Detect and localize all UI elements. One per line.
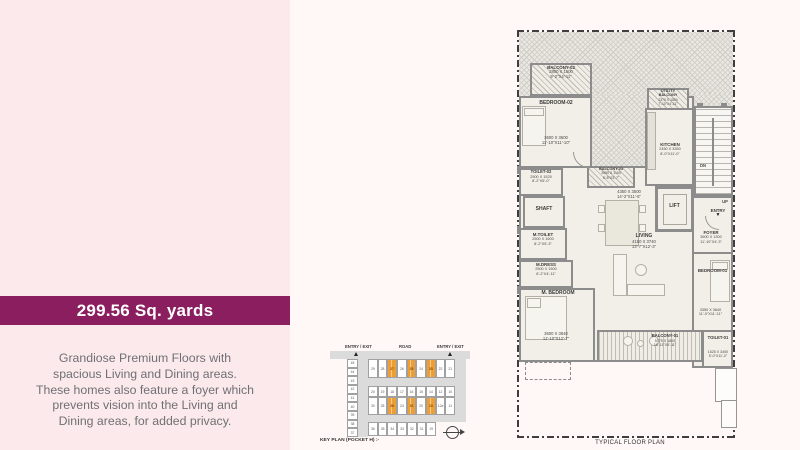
description-line: Dining areas, for added privacy. xyxy=(14,414,276,430)
key-plan-cell: 14 xyxy=(426,386,436,397)
key-plan-cell: 24 xyxy=(397,397,407,415)
key-plan-cell: 10 xyxy=(445,386,455,397)
wall-tick xyxy=(517,226,521,234)
key-plan-cell: 24 xyxy=(416,359,426,378)
stair-rail xyxy=(712,118,714,186)
m-bedroom-projection xyxy=(525,362,571,380)
key-plan-cell: 12a xyxy=(436,397,446,415)
key-plan-cell: 19 xyxy=(426,422,436,436)
key-plan-cell: 34 xyxy=(387,422,397,436)
kitchen-counter-icon xyxy=(647,112,656,170)
chair-icon xyxy=(639,224,646,232)
key-plan-caption: KEY PLAN (POCKET H) :- xyxy=(320,438,379,443)
wall-tick xyxy=(517,286,521,294)
entry-exit-left-label: ENTRY / EXIT xyxy=(345,344,372,349)
key-plan-cell: 40 xyxy=(347,402,358,411)
key-plan-row-1: 292827262524232221 xyxy=(368,359,455,378)
room-balcony-01 xyxy=(597,330,703,362)
key-plan: ENTRY / EXIT ROAD ENTRY / EXIT 454443424… xyxy=(318,342,476,450)
key-plan-cell: 15 xyxy=(416,386,426,397)
floor-plan-caption: TYPICAL FLOOR PLAN xyxy=(560,440,700,446)
room-utility-balcony xyxy=(647,88,689,110)
key-plan-cell: 26 xyxy=(397,359,407,378)
key-plan-cell: 22 xyxy=(436,359,446,378)
road-right-vertical xyxy=(455,359,466,422)
wall-tick xyxy=(721,103,727,108)
key-plan-cell: 20 xyxy=(416,397,426,415)
road-middle-1 xyxy=(368,378,466,386)
key-plan-cell: 30 xyxy=(368,397,378,415)
key-plan-cell: 39 xyxy=(347,411,358,420)
description-line: These homes also feature a foyer which xyxy=(14,383,276,399)
key-plan-cell: 26 xyxy=(387,397,397,415)
road-label: ROAD xyxy=(399,344,411,349)
key-plan-cell: 28 xyxy=(378,397,388,415)
entry-exit-right-label: ENTRY / EXIT xyxy=(437,344,464,349)
description-line: Grandiose Premium Floors with xyxy=(14,351,276,367)
entry-marker-icon xyxy=(448,352,452,356)
key-plan-cell: 44 xyxy=(347,368,358,377)
key-plan-cell: 32 xyxy=(407,422,417,436)
key-plan-row-4: 36353433323119 xyxy=(368,422,436,436)
key-plan-cell: 25 xyxy=(407,359,417,378)
key-plan-cell: 29 xyxy=(368,359,378,378)
compass-tip xyxy=(460,429,465,435)
key-plan-cell: 11 xyxy=(445,397,455,415)
key-plan-row-2: 201918171615141210 xyxy=(368,386,455,397)
key-plan-cell: 27 xyxy=(387,359,397,378)
pillow-icon xyxy=(527,298,541,308)
sofa-icon xyxy=(627,284,665,296)
area-banner: 299.56 Sq. yards xyxy=(0,296,290,325)
room-shaft xyxy=(523,196,565,228)
plan-border-bottom xyxy=(517,436,735,438)
description-line: prevents vision into the Living and xyxy=(14,398,276,414)
key-plan-cell: 31 xyxy=(417,422,427,436)
key-plan-cell: 41 xyxy=(347,394,358,403)
area-label: 299.56 Sq. yards xyxy=(77,301,213,321)
pillow-icon xyxy=(524,108,544,116)
floor-plan: DN UP BALCONY-02 2800 X 1500 9'-2"X4'- xyxy=(517,30,735,438)
chair-icon xyxy=(639,205,646,213)
key-plan-cell: 23 xyxy=(426,359,436,378)
road-left-vertical xyxy=(358,359,368,437)
key-plan-cell: 12 xyxy=(436,386,446,397)
room-balcony-02 xyxy=(530,63,592,96)
key-plan-cell: 22 xyxy=(407,397,417,415)
balcony-chair-icon xyxy=(623,336,633,346)
info-panel: 299.56 Sq. yards Grandiose Premium Floor… xyxy=(0,0,290,450)
hatch-region-middle xyxy=(589,94,649,168)
dining-table-icon xyxy=(605,200,639,246)
coffee-table-icon xyxy=(635,264,647,276)
key-plan-cell: 36 xyxy=(368,422,378,436)
lift-car xyxy=(663,194,687,225)
sofa-icon xyxy=(613,254,627,296)
key-plan-cell: 28 xyxy=(378,359,388,378)
key-plan-cell: 19 xyxy=(378,386,388,397)
key-plan-row-3: 3028262422201312a11 xyxy=(368,397,455,415)
key-plan-cell: 13 xyxy=(426,397,436,415)
description-line: spacious Living and Dining areas. xyxy=(14,367,276,383)
wall-tick xyxy=(697,103,703,108)
entry-marker-icon xyxy=(354,352,358,356)
balcony-chair-icon xyxy=(649,336,659,346)
key-plan-cell: 38 xyxy=(347,420,358,429)
north-arrow-icon xyxy=(446,426,459,439)
key-plan-cell: 43 xyxy=(347,376,358,385)
key-plan-cell: 37 xyxy=(347,428,358,437)
service-box-1 xyxy=(715,368,737,402)
key-plan-cell: 16 xyxy=(407,386,417,397)
balcony-table-icon xyxy=(637,340,644,347)
room-toilet-01 xyxy=(702,330,733,368)
room-m-dress xyxy=(519,260,573,288)
key-plan-cell: 20 xyxy=(368,386,378,397)
room-m-toilet xyxy=(519,228,567,260)
key-plan-cell: 17 xyxy=(397,386,407,397)
room-balcony-03 xyxy=(587,166,635,188)
description: Grandiose Premium Floors with spacious L… xyxy=(14,351,276,430)
key-plan-cell: 21 xyxy=(445,359,455,378)
room-toilet-02 xyxy=(519,168,563,196)
wall-tick xyxy=(517,166,521,174)
key-plan-cell: 35 xyxy=(378,422,388,436)
service-box-2 xyxy=(721,400,737,428)
chair-icon xyxy=(598,205,605,213)
road-middle-2 xyxy=(368,415,466,422)
key-plan-cell: 33 xyxy=(397,422,407,436)
pillow-icon xyxy=(712,262,728,270)
key-plan-cell: 45 xyxy=(347,359,358,368)
key-plan-cell: 18 xyxy=(387,386,397,397)
key-plan-left-column: 454443424140393837 xyxy=(347,359,358,437)
chair-icon xyxy=(598,224,605,232)
key-plan-cell: 42 xyxy=(347,385,358,394)
